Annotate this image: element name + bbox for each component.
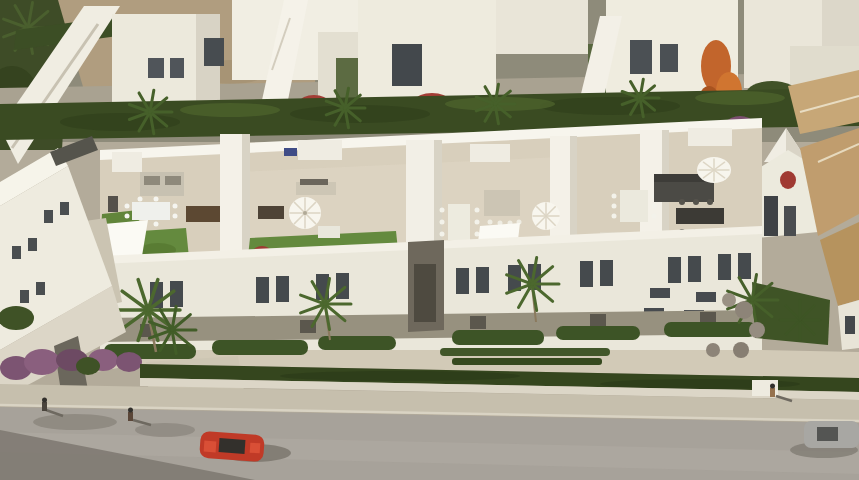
boundary-hedge-shade-1	[280, 371, 520, 381]
umbrella-1-pole	[303, 211, 307, 215]
divider-2-side	[434, 140, 442, 242]
divider-2	[406, 140, 434, 242]
red-car-glass	[219, 438, 246, 454]
front-hedge-4	[452, 330, 544, 345]
grey-sphere-5	[706, 343, 720, 357]
person-3-body	[770, 388, 775, 397]
red-car-trunk	[250, 443, 261, 454]
person-1-head	[42, 398, 47, 403]
kitchen-2-top	[300, 179, 328, 185]
flower-right-terrace	[780, 171, 796, 189]
right-garden-palm-2	[780, 300, 820, 340]
grey-sphere-2	[749, 322, 765, 338]
roof-box-1	[298, 140, 342, 160]
dining-table-4	[620, 190, 648, 222]
tree-shadow-2	[135, 423, 195, 437]
kitchen-3	[484, 190, 520, 216]
person-1-body	[42, 402, 47, 411]
hedge-row-right-1	[440, 348, 610, 356]
grey-car-glass	[817, 427, 838, 441]
person-3-head	[770, 384, 775, 389]
pergola-box	[186, 206, 220, 222]
right-house-window	[845, 316, 855, 334]
gable-door-2	[784, 206, 796, 236]
dining-table-3	[448, 204, 470, 240]
purple-bush-5	[116, 352, 142, 372]
umbrella-3-ribs	[699, 159, 729, 181]
hedge-shade-3	[540, 97, 680, 115]
umbrella-2-ribs	[533, 203, 559, 229]
grill-1	[108, 196, 118, 212]
purple-bush-2	[24, 349, 60, 375]
roof-box-2	[470, 144, 510, 162]
passage-inner	[414, 264, 436, 322]
table-2	[318, 226, 340, 238]
divider-1-side	[242, 134, 250, 254]
hedge-row-right-2	[452, 358, 602, 365]
dark-box-2	[258, 206, 284, 219]
hedge-light-3	[695, 91, 785, 105]
aerial-render-image	[0, 0, 859, 480]
bg-b3-window	[392, 44, 422, 86]
front-hedge-6	[664, 322, 756, 337]
lounge-cushion-2	[165, 176, 181, 185]
front-hedge-1	[104, 344, 196, 359]
divider-3-side	[570, 136, 577, 242]
bg-b1-window-3	[204, 38, 224, 66]
roof-blue-item	[284, 148, 297, 156]
front-hedge-5	[556, 326, 640, 340]
dining-table-1	[132, 202, 170, 220]
bg-b1-window-1	[148, 58, 164, 78]
tree-shadow-1	[33, 414, 117, 430]
grey-sphere-3	[733, 342, 749, 358]
roof-box-4	[112, 152, 142, 172]
red-car-hood	[204, 441, 217, 453]
scene-svg	[0, 0, 859, 480]
bg-b5-window-1	[630, 40, 652, 74]
bg-building-4	[496, 0, 588, 54]
roof-box-3	[688, 128, 732, 146]
dining-5	[676, 208, 724, 224]
front-hedge-2	[212, 340, 308, 355]
person-2-head	[128, 408, 133, 413]
gable-door-1	[764, 196, 778, 236]
person-2-body	[128, 412, 133, 421]
grey-sphere-4	[722, 293, 736, 307]
green-bush-between	[76, 357, 100, 375]
lounge-cushion-1	[144, 176, 160, 185]
grey-sphere-1	[735, 301, 753, 319]
bg-b1-window-2	[170, 58, 184, 78]
hedge-light-1	[180, 103, 280, 117]
divider-1	[220, 134, 242, 254]
bg-b5-window-2	[660, 44, 678, 72]
